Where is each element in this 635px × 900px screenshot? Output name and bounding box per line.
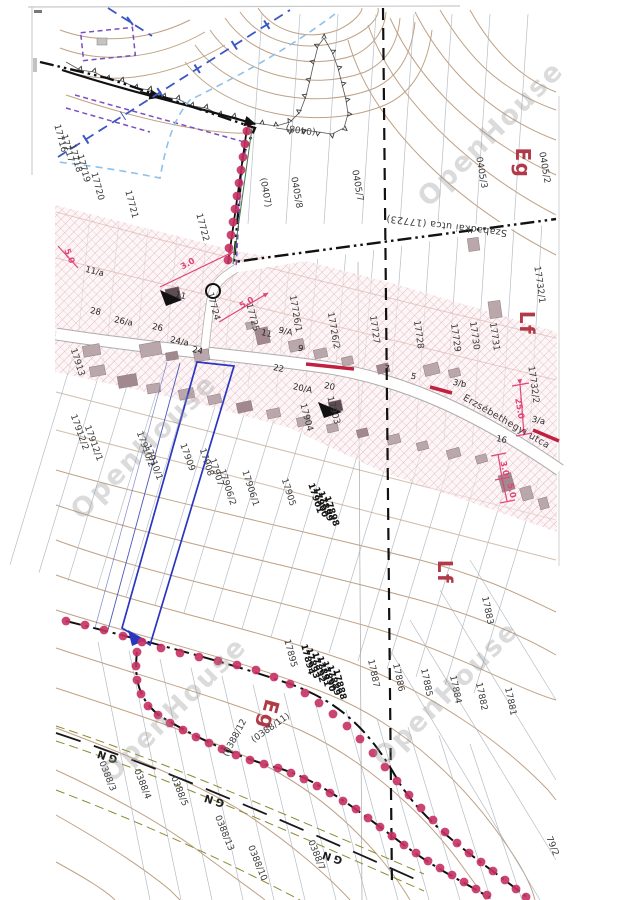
cadastral-map: EgLfLfEgErzsébethegyi utcaSzabadkai utca… <box>0 0 635 900</box>
boundary-dot <box>352 805 361 814</box>
zone-label: Eg <box>511 148 535 179</box>
lot-line <box>439 736 491 900</box>
boundary-dot <box>81 621 90 630</box>
parcel-label: 17909 <box>177 442 196 473</box>
boundary-dot <box>412 849 421 858</box>
boundary-dot <box>192 733 201 742</box>
lot-line <box>300 430 365 645</box>
boundary-dot <box>400 841 409 850</box>
parcel-label: (0407) <box>257 177 272 208</box>
boundary-dot <box>274 764 283 773</box>
boundary-dot <box>313 782 322 791</box>
boundary-dot <box>229 218 238 227</box>
boundary-dot <box>237 166 246 175</box>
boundary-dot <box>417 804 426 813</box>
lot-line <box>400 14 414 224</box>
boundary-dot <box>300 775 309 784</box>
boundary-dot <box>227 231 236 240</box>
parcel-label: 0388/10 <box>245 844 268 883</box>
wm-label: OpenHouse <box>412 55 570 213</box>
boundary-dot <box>441 828 450 837</box>
boundary-dot <box>388 832 397 841</box>
wm-label: OpenHouse <box>95 631 253 789</box>
boundary-dot <box>270 673 279 682</box>
boundary-dot <box>287 769 296 778</box>
boundary-dot <box>246 756 255 765</box>
boundary-dot <box>132 662 141 671</box>
parcel-label: 79/2 <box>543 835 560 857</box>
parcel-label: 0405/7 <box>349 169 364 202</box>
lot-line <box>470 744 522 900</box>
boundary-dot <box>472 885 481 894</box>
boundary-dot <box>138 638 147 647</box>
boundary-dot <box>100 626 109 635</box>
boundary-dot <box>393 777 402 786</box>
boundary-dot <box>119 632 128 641</box>
boundary-dot <box>326 789 335 798</box>
lot-line <box>213 406 278 621</box>
lot-line <box>10 350 75 565</box>
parcel-label: 17721 <box>122 189 139 219</box>
boundary-dot <box>436 864 445 873</box>
zone-label: Lf <box>515 311 539 335</box>
parcel-label: 0388/13 <box>212 814 235 852</box>
lot-line <box>242 414 307 629</box>
parcel-label: 17881 <box>502 687 518 717</box>
boundary-dot <box>179 726 188 735</box>
boundary-dot <box>522 893 531 900</box>
boundary-dot <box>233 192 242 201</box>
zone-label: Lf <box>433 560 457 584</box>
parcel-label: 17887 <box>365 659 381 689</box>
boundary-dot <box>489 867 498 876</box>
lot-line <box>39 358 104 573</box>
boundary-dot <box>339 797 348 806</box>
boundary-dot <box>252 666 261 675</box>
boundary-dot <box>235 179 244 188</box>
boundary-dot <box>329 710 338 719</box>
boundary-dot <box>343 722 352 731</box>
parcel-label: 17720 <box>88 171 105 202</box>
boundary-dot <box>424 857 433 866</box>
boundary-dot <box>176 649 185 658</box>
parcel-label: 17895 <box>281 638 298 668</box>
boundary-dot <box>133 676 142 685</box>
parcel-label: 0388/4 <box>131 768 152 801</box>
parcel-label: 17883 <box>479 596 495 626</box>
parcel-label: 17906/2 <box>216 468 237 507</box>
utility-line-blue <box>58 8 290 157</box>
boundary-dot <box>243 127 252 136</box>
boundary-dot <box>301 689 310 698</box>
boundary-dot <box>241 140 250 149</box>
boundary-dot <box>405 791 414 800</box>
boundary-dot <box>315 699 324 708</box>
boundary-dot <box>231 205 240 214</box>
boundary-dot <box>460 878 469 887</box>
boundary-dot <box>483 891 492 900</box>
boundary-dot <box>224 256 233 265</box>
parcel-label: (0408) <box>285 122 316 136</box>
parcel-label: 17732/1 <box>531 266 546 304</box>
boundary-dot <box>62 617 71 626</box>
boundary-dot <box>448 871 457 880</box>
boundary-dot <box>133 648 142 657</box>
boundary-dot <box>356 735 365 744</box>
boundary-dot <box>453 839 462 848</box>
boundary-dot <box>260 760 269 769</box>
lot-line <box>271 422 336 637</box>
parcel-label: 0405/8 <box>288 176 303 209</box>
parcel-label: 17886 <box>390 663 406 693</box>
boundary-dot <box>239 153 248 162</box>
boundary-dot <box>205 739 214 748</box>
parcel-label: 0405/2 <box>536 151 551 184</box>
boundary-dot <box>465 849 474 858</box>
boundary-dot <box>501 876 510 885</box>
map-page: EgLfLfEgErzsébethegyi utcaSzabadkai utca… <box>0 0 635 900</box>
boundary-dot <box>157 644 166 653</box>
boundary-dot <box>429 816 438 825</box>
lot-line <box>324 14 338 224</box>
parcel-label: 17722 <box>193 212 210 242</box>
boundary-dot <box>376 823 385 832</box>
boundary-dot <box>286 680 295 689</box>
boundary-dot <box>144 702 153 711</box>
boundary-dot <box>137 690 146 699</box>
boundary-dot <box>364 814 373 823</box>
boundary-dot <box>477 858 486 867</box>
boundary-dot <box>225 244 234 253</box>
gn-label: GN <box>200 791 226 810</box>
boundary-dot <box>512 885 521 894</box>
